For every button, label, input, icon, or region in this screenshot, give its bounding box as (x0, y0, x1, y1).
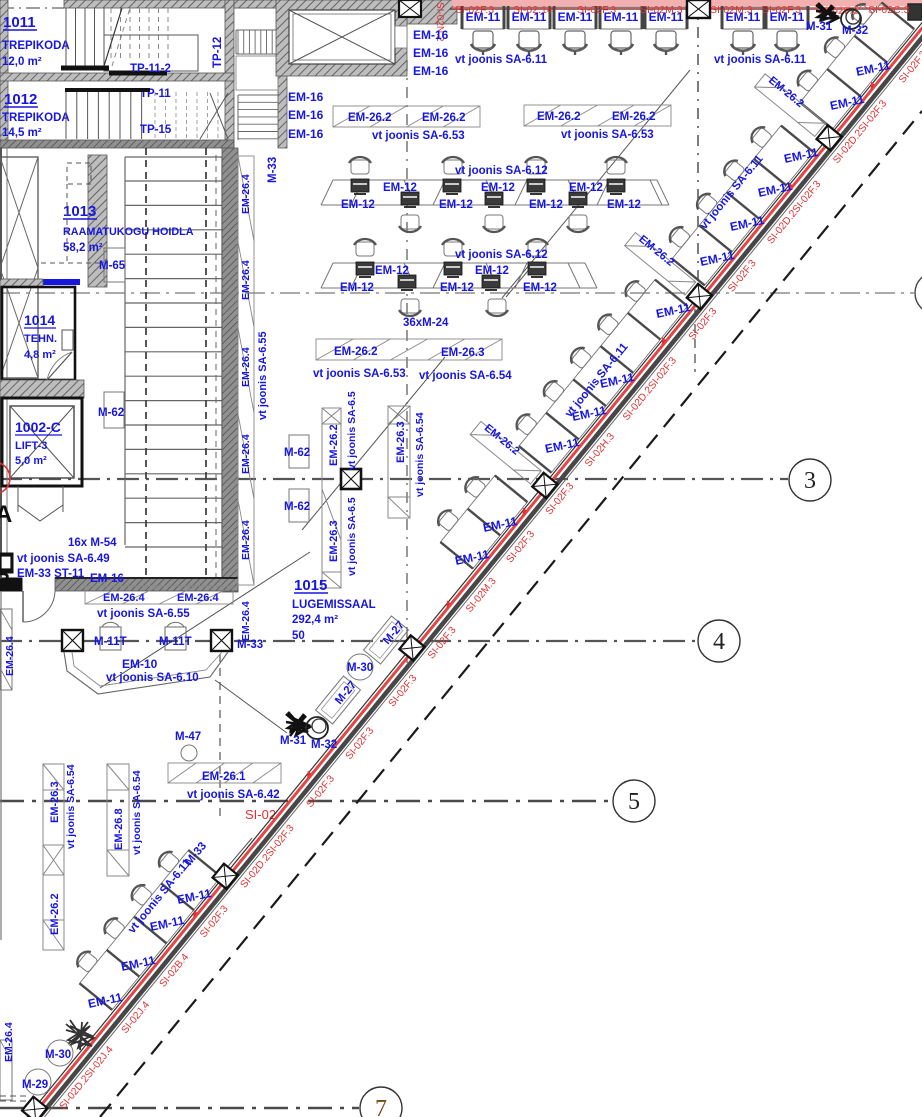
svg-text:vt joonis SA-6.5: vt joonis SA-6.5 (346, 391, 358, 470)
svg-text:vt joonis SA-6.49: vt joonis SA-6.49 (17, 553, 110, 565)
svg-text:EM-26.2: EM-26.2 (348, 112, 391, 124)
svg-text:5,0 m²: 5,0 m² (15, 455, 47, 467)
svg-text:M-33: M-33 (267, 157, 279, 183)
svg-text:EM-12: EM-12 (529, 199, 563, 211)
svg-text:14,5 m²: 14,5 m² (2, 127, 42, 139)
svg-text:M-31: M-31 (280, 735, 307, 747)
svg-text:EM-12: EM-12 (481, 182, 515, 194)
svg-text:vt joonis SA-6.55: vt joonis SA-6.55 (97, 608, 190, 620)
svg-text:1013: 1013 (63, 203, 96, 220)
svg-text:EM-26.3: EM-26.3 (328, 520, 340, 562)
svg-text:vt joonis SA-6.54: vt joonis SA-6.54 (65, 764, 77, 849)
svg-text:M-30: M-30 (45, 1049, 71, 1061)
svg-text:SI-02.14: SI-02.14 (513, 4, 553, 16)
svg-text:EM-26.4: EM-26.4 (240, 601, 252, 641)
svg-text:M-32: M-32 (311, 739, 337, 751)
svg-text:EM-26.4: EM-26.4 (177, 592, 219, 604)
svg-text:EM-26.4: EM-26.4 (240, 520, 252, 560)
svg-text:LUGEMISSAAL: LUGEMISSAAL (292, 599, 376, 611)
svg-text:1015: 1015 (294, 577, 327, 594)
svg-text:M-62: M-62 (284, 447, 310, 459)
svg-text:vt joonis SA-6.12: vt joonis SA-6.12 (455, 249, 548, 261)
svg-text:M-11T: M-11T (159, 636, 192, 648)
svg-text:EM-12: EM-12 (340, 282, 374, 294)
svg-text:vt joonis SA-6.53: vt joonis SA-6.53 (313, 368, 406, 380)
svg-text:EM-16: EM-16 (288, 127, 324, 141)
svg-text:12,0 m²: 12,0 m² (2, 56, 42, 68)
svg-text:M-30: M-30 (347, 662, 373, 674)
svg-text:SI-02F.3: SI-02F.3 (455, 4, 494, 16)
svg-text:vt joonis SA-6.5: vt joonis SA-6.5 (346, 497, 358, 576)
svg-text:EM-12: EM-12 (523, 282, 557, 294)
svg-text:EM-26.3: EM-26.3 (441, 347, 484, 359)
svg-text:vt joonis SA-6.11: vt joonis SA-6.11 (714, 54, 807, 66)
svg-text:vt joonis SA-6.53: vt joonis SA-6.53 (372, 130, 465, 142)
svg-text:EM-26.4: EM-26.4 (240, 174, 252, 214)
svg-text:1002-C: 1002-C (15, 419, 61, 435)
svg-text:EM-16: EM-16 (413, 28, 449, 42)
svg-text:EM-12: EM-12 (439, 199, 473, 211)
svg-text:EM-16: EM-16 (413, 64, 449, 78)
svg-text:M-47: M-47 (175, 731, 201, 743)
svg-text:A: A (0, 501, 12, 528)
svg-text:EM-26.8: EM-26.8 (113, 808, 125, 850)
svg-text:EM-12: EM-12 (440, 282, 474, 294)
svg-text:7: 7 (375, 1096, 387, 1117)
svg-text:EM-26.1: EM-26.1 (202, 771, 246, 783)
svg-text:vt joonis SA-6.54: vt joonis SA-6.54 (419, 370, 512, 382)
svg-text:M-62: M-62 (284, 501, 310, 513)
svg-text:EM-26.4: EM-26.4 (4, 636, 16, 676)
svg-text:M-11T: M-11T (94, 636, 127, 648)
svg-text:16x M-54: 16x M-54 (68, 537, 117, 549)
svg-text:vt joonis SA-6.10: vt joonis SA-6.10 (106, 672, 199, 684)
svg-text:EM-16: EM-16 (288, 90, 324, 104)
svg-text:EM-26.3: EM-26.3 (49, 781, 61, 823)
svg-text:4: 4 (713, 629, 725, 655)
svg-text:EM-12: EM-12 (475, 265, 509, 277)
svg-text:SI-02: SI-02 (245, 807, 276, 822)
svg-text:TREPIKODA: TREPIKODA (2, 112, 70, 124)
svg-text:EM-26.4: EM-26.4 (3, 1022, 15, 1062)
svg-text:EM-12: EM-12 (607, 199, 641, 211)
svg-text:EM-26.4: EM-26.4 (240, 260, 252, 300)
svg-text:EM-26.2: EM-26.2 (537, 111, 580, 123)
svg-text:EM-12: EM-12 (375, 265, 409, 277)
svg-text:M-29: M-29 (22, 1079, 48, 1091)
svg-text:SI-02M.3: SI-02M.3 (640, 4, 683, 16)
svg-text:EM-26.2: EM-26.2 (334, 346, 377, 358)
svg-text:EM-16: EM-16 (288, 108, 324, 122)
svg-text:M-33: M-33 (237, 639, 263, 651)
svg-text:TP-12: TP-12 (212, 37, 224, 68)
svg-text:vt joonis SA-6.12: vt joonis SA-6.12 (455, 165, 548, 177)
svg-text:50: 50 (292, 630, 305, 642)
svg-text:LIFT-3: LIFT-3 (15, 440, 47, 452)
svg-text:SI-02F.3: SI-02F.3 (577, 4, 616, 16)
svg-text:EM-16: EM-16 (90, 573, 124, 585)
svg-text:EM-33 ST-11: EM-33 ST-11 (17, 568, 85, 580)
svg-text:RAAMATUKOGU HOIDLA: RAAMATUKOGU HOIDLA (63, 226, 194, 238)
svg-text:3: 3 (804, 468, 816, 494)
svg-text:EM-26.2: EM-26.2 (422, 112, 465, 124)
svg-text:EM-26.2: EM-26.2 (612, 111, 655, 123)
svg-text:EM-10: EM-10 (122, 657, 158, 671)
svg-text:EM-26.4: EM-26.4 (240, 434, 252, 474)
svg-text:1012: 1012 (4, 91, 37, 108)
svg-text:SI-02F.3: SI-02F.3 (762, 4, 801, 16)
svg-text:EM-26.2: EM-26.2 (49, 893, 61, 935)
svg-text:36xM-24: 36xM-24 (403, 317, 449, 329)
svg-text:SI-02M.3: SI-02M.3 (710, 4, 753, 16)
svg-text:M-32: M-32 (842, 25, 868, 37)
svg-text:vt joonis SA-6.53: vt joonis SA-6.53 (561, 129, 654, 141)
svg-text:1011: 1011 (3, 14, 36, 31)
svg-text:M-62: M-62 (98, 407, 124, 419)
svg-text:1014: 1014 (24, 312, 55, 328)
svg-text:EM-12: EM-12 (341, 199, 375, 211)
svg-text:292,4 m²: 292,4 m² (292, 614, 338, 626)
svg-text:M-31: M-31 (806, 21, 833, 33)
svg-text:SI-02C.3: SI-02C.3 (868, 4, 910, 16)
svg-text:EM-16: EM-16 (413, 46, 449, 60)
svg-text:EM-26.4: EM-26.4 (240, 347, 252, 387)
svg-text:M-65: M-65 (99, 260, 126, 272)
svg-text:TP-15: TP-15 (140, 124, 172, 136)
svg-text:TREPIKODA: TREPIKODA (2, 40, 70, 52)
svg-text:TP-11-2: TP-11-2 (130, 63, 171, 75)
svg-text:EM-26.4: EM-26.4 (103, 592, 145, 604)
svg-text:EM-12: EM-12 (383, 182, 417, 194)
svg-text:4,8 m²: 4,8 m² (24, 349, 56, 361)
svg-text:vt joonis SA-6.42: vt joonis SA-6.42 (187, 789, 280, 801)
svg-text:vt joonis SA-6.54: vt joonis SA-6.54 (414, 412, 426, 497)
svg-text:vt joonis SA-6.55: vt joonis SA-6.55 (257, 331, 269, 420)
svg-text:vt joonis SA-6.54: vt joonis SA-6.54 (131, 770, 143, 855)
svg-text:TEHN.: TEHN. (24, 333, 57, 345)
svg-text:vt joonis SA-6.11: vt joonis SA-6.11 (455, 54, 548, 66)
svg-text:5: 5 (628, 789, 640, 815)
svg-text:58,2 m²: 58,2 m² (63, 242, 103, 254)
svg-text:EM-12: EM-12 (569, 182, 603, 194)
svg-text:EM-26.3: EM-26.3 (395, 421, 407, 463)
svg-text:EM-26.2: EM-26.2 (328, 424, 340, 466)
